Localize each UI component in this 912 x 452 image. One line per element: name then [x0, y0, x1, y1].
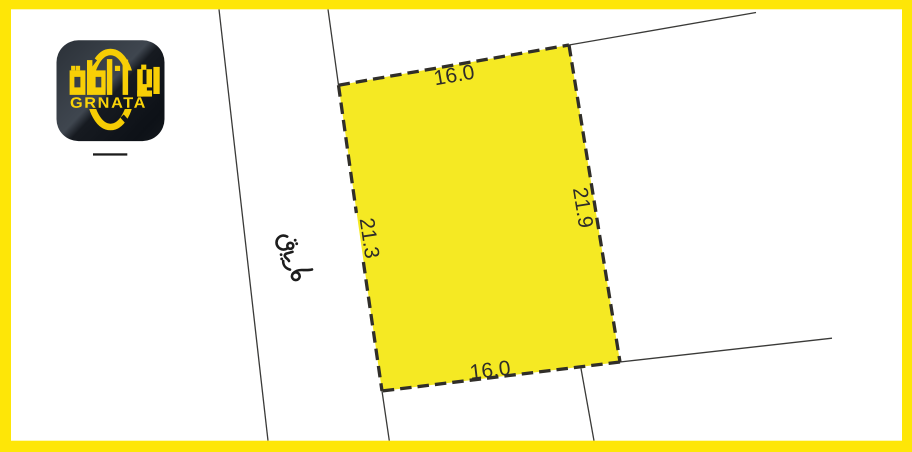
- svg-text:GRNATA: GRNATA: [70, 95, 147, 112]
- svg-text:16.0: 16.0: [468, 357, 511, 385]
